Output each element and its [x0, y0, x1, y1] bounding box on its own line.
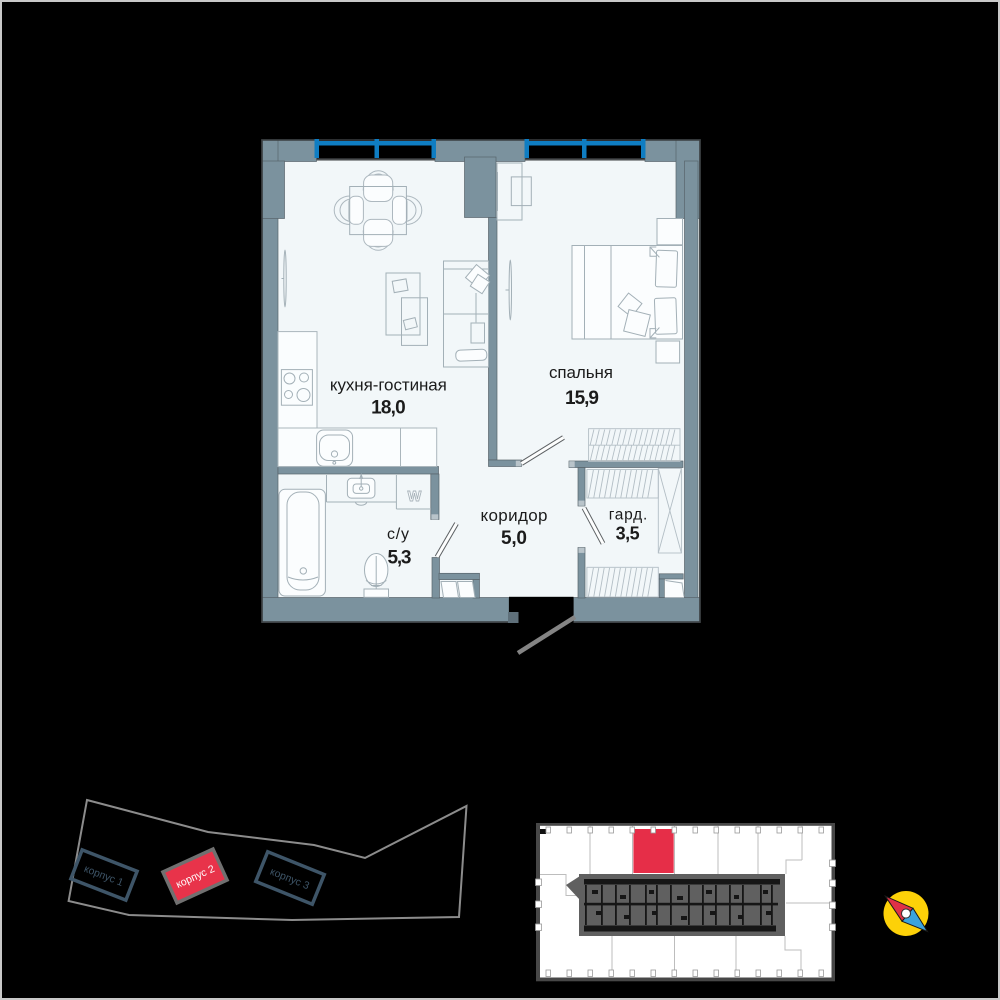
svg-text:15,9: 15,9 — [565, 388, 599, 409]
svg-text:спальня: спальня — [549, 363, 613, 382]
svg-text:коридор: коридор — [481, 506, 548, 525]
svg-text:18,0: 18,0 — [371, 398, 406, 419]
svg-text:кухня-гостиная: кухня-гостиная — [330, 376, 447, 395]
svg-text:гард.: гард. — [609, 507, 648, 524]
svg-text:3,5: 3,5 — [616, 524, 640, 544]
svg-text:5,0: 5,0 — [501, 528, 527, 549]
svg-text:W: W — [408, 489, 422, 505]
svg-text:5,3: 5,3 — [388, 548, 412, 569]
svg-text:с/у: с/у — [387, 526, 409, 543]
